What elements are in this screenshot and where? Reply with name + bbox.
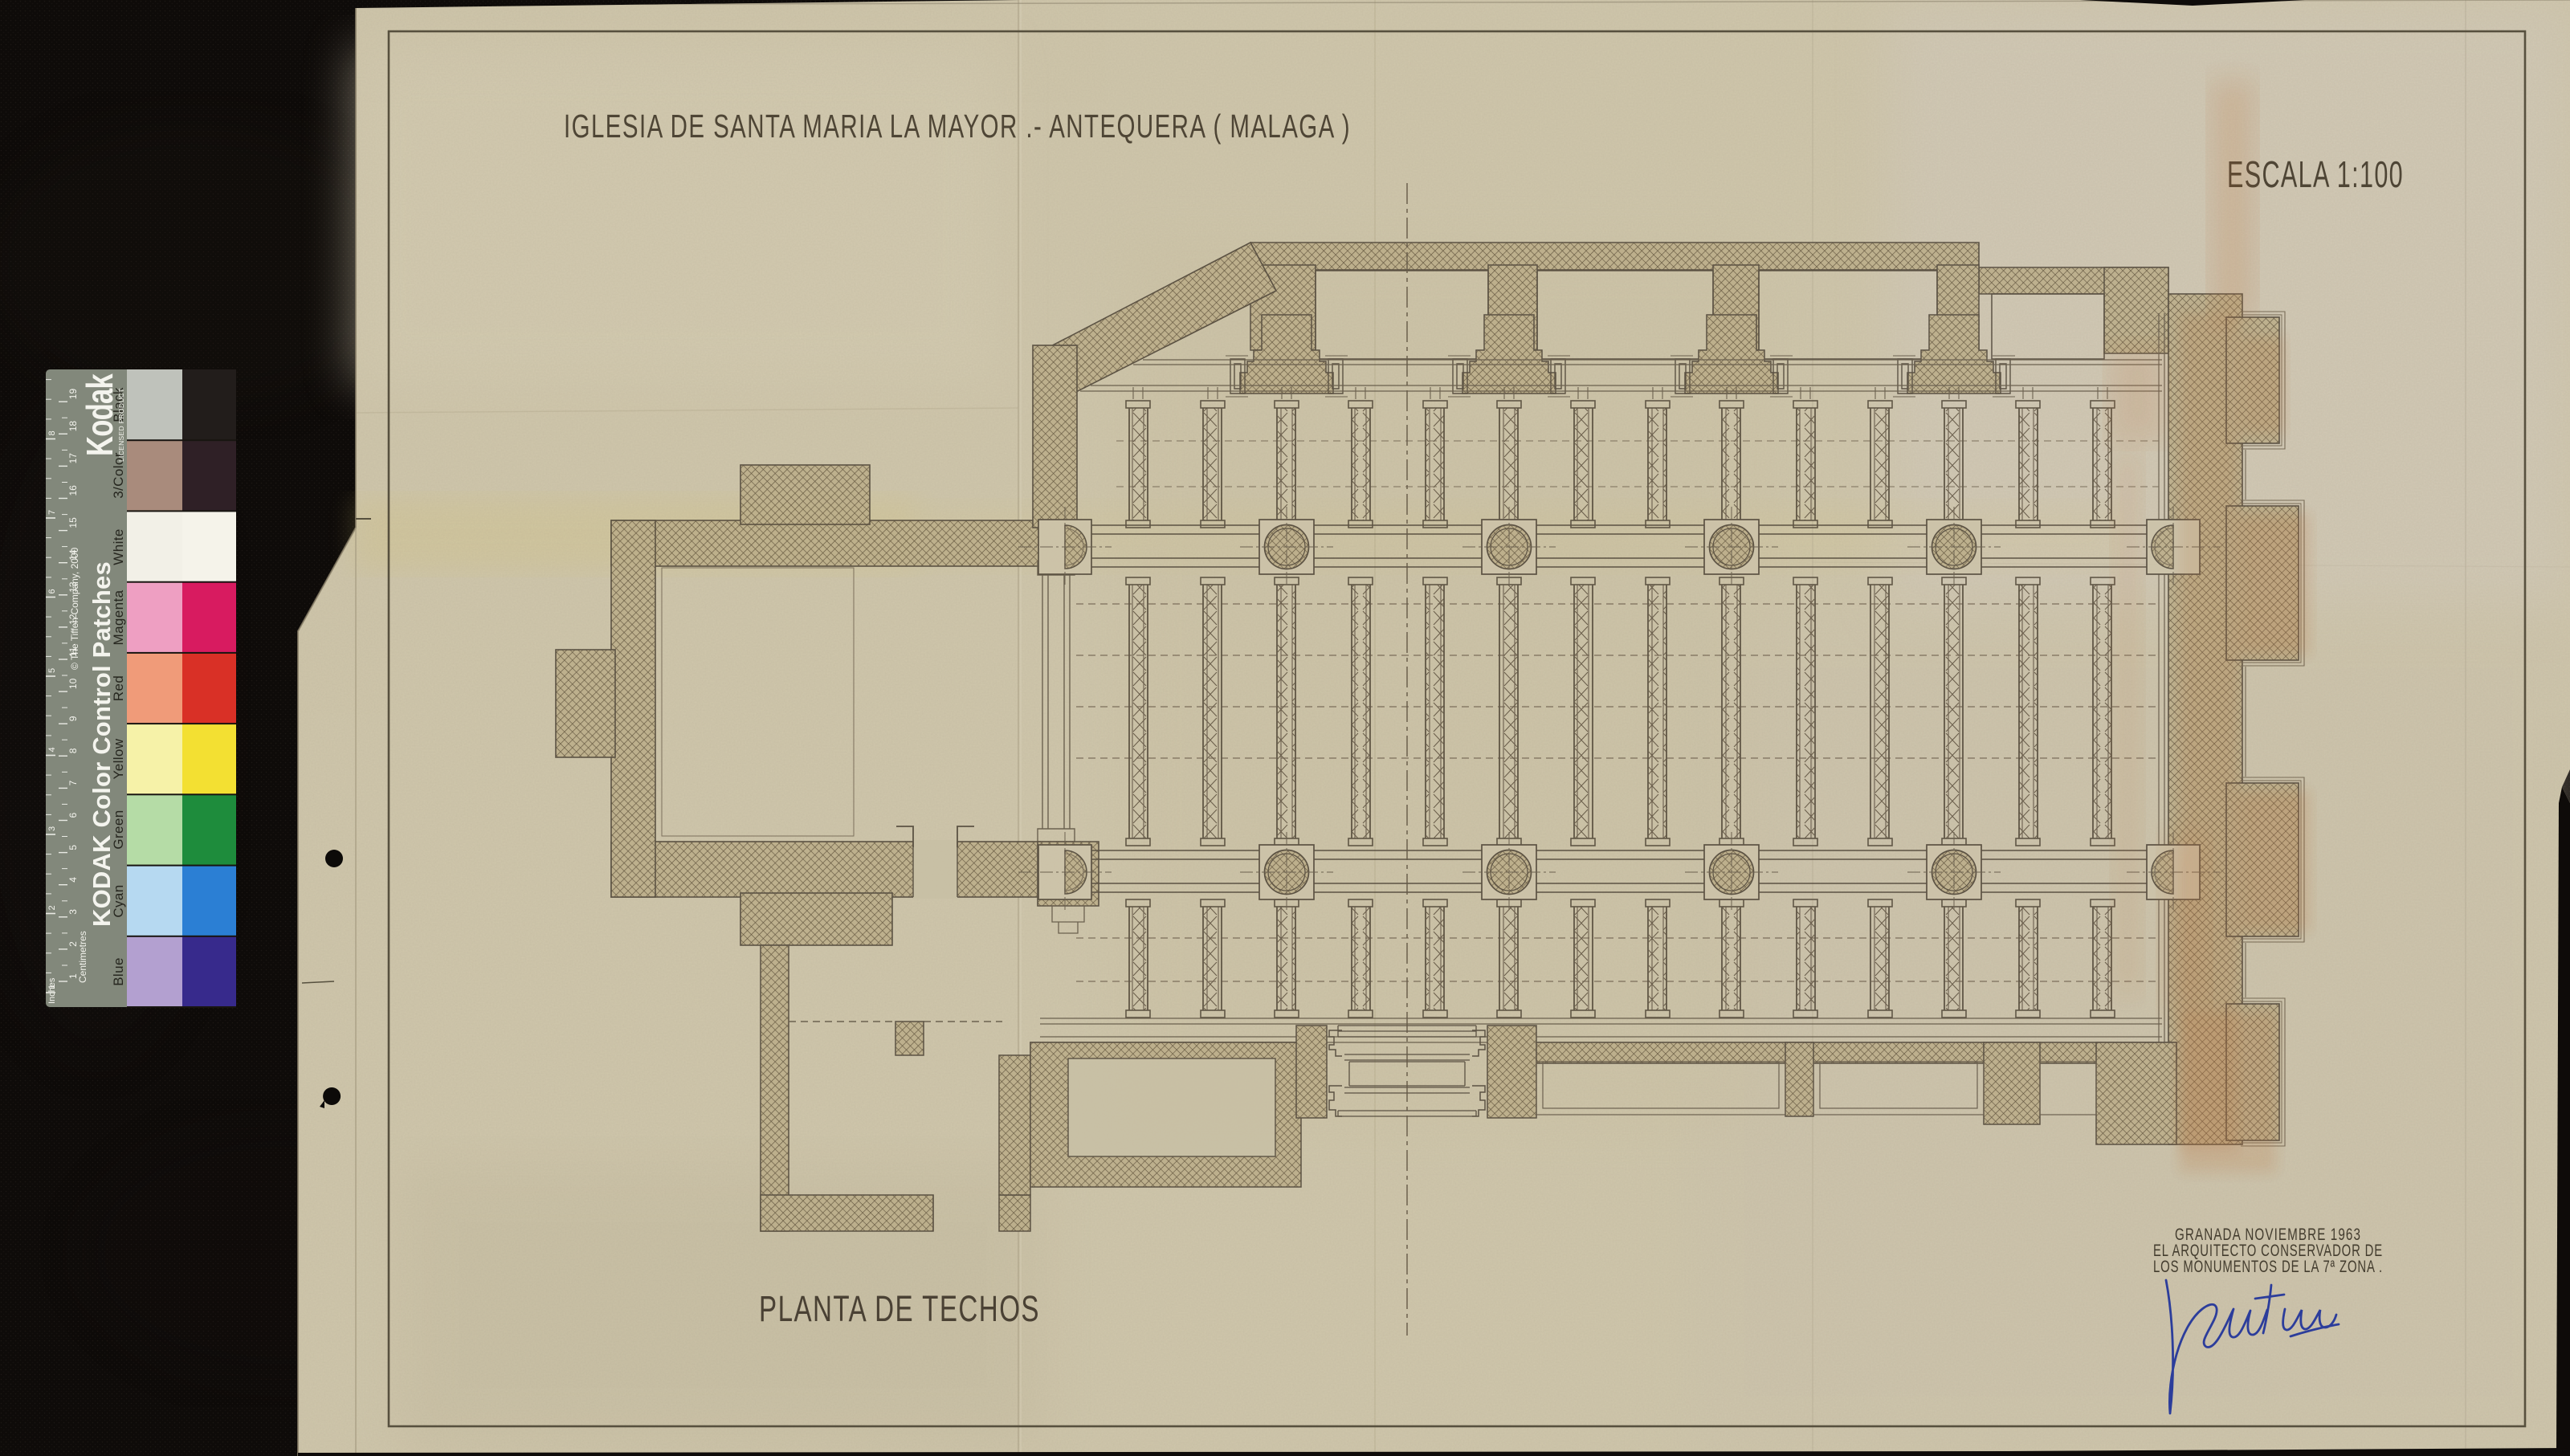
svg-text:3: 3 bbox=[47, 826, 57, 831]
svg-text:15: 15 bbox=[67, 517, 79, 528]
svg-text:LICENSED PRODUCT: LICENSED PRODUCT bbox=[117, 388, 125, 462]
svg-text:5: 5 bbox=[47, 668, 57, 673]
svg-text:2: 2 bbox=[47, 905, 57, 910]
svg-text:9: 9 bbox=[67, 716, 79, 721]
svg-text:11: 11 bbox=[67, 646, 79, 657]
svg-text:14: 14 bbox=[67, 549, 79, 561]
svg-text:Inches: Inches bbox=[47, 977, 57, 1004]
svg-text:10: 10 bbox=[67, 678, 79, 689]
svg-text:Centimetres: Centimetres bbox=[77, 931, 88, 983]
svg-text:7: 7 bbox=[67, 780, 79, 785]
svg-text:1: 1 bbox=[47, 985, 57, 989]
svg-text:12: 12 bbox=[67, 614, 79, 625]
svg-text:PLANTA DE TECHOS: PLANTA DE TECHOS bbox=[759, 1288, 1040, 1329]
svg-text:LOS MONUMENTOS DE LA 7ª ZONA .: LOS MONUMENTOS DE LA 7ª ZONA . bbox=[2153, 1258, 2383, 1276]
svg-text:7: 7 bbox=[47, 510, 57, 515]
svg-text:White: White bbox=[111, 528, 126, 565]
svg-text:Kodak: Kodak bbox=[79, 373, 120, 456]
svg-text:19: 19 bbox=[67, 389, 79, 400]
svg-text:4: 4 bbox=[47, 747, 57, 752]
svg-text:17: 17 bbox=[67, 453, 79, 464]
svg-text:1: 1 bbox=[67, 973, 79, 979]
svg-text:8: 8 bbox=[47, 430, 57, 435]
svg-text:8: 8 bbox=[67, 748, 79, 753]
svg-text:5: 5 bbox=[67, 845, 79, 850]
svg-text:4: 4 bbox=[67, 877, 79, 883]
svg-text:2: 2 bbox=[67, 941, 79, 947]
svg-text:KODAK Color Control Patches: KODAK Color Control Patches bbox=[88, 561, 116, 927]
svg-text:13: 13 bbox=[67, 581, 79, 593]
svg-text:18: 18 bbox=[67, 421, 79, 432]
svg-text:IGLESIA DE SANTA MARIA LA: IGLESIA DE SANTA MARIA LA MAYOR .- ANTEQ… bbox=[564, 108, 1351, 145]
svg-text:3: 3 bbox=[67, 909, 79, 915]
svg-text:6: 6 bbox=[67, 813, 79, 818]
svg-text:6: 6 bbox=[47, 589, 57, 593]
svg-text:16: 16 bbox=[67, 485, 79, 496]
svg-text:Blue: Blue bbox=[111, 957, 126, 986]
